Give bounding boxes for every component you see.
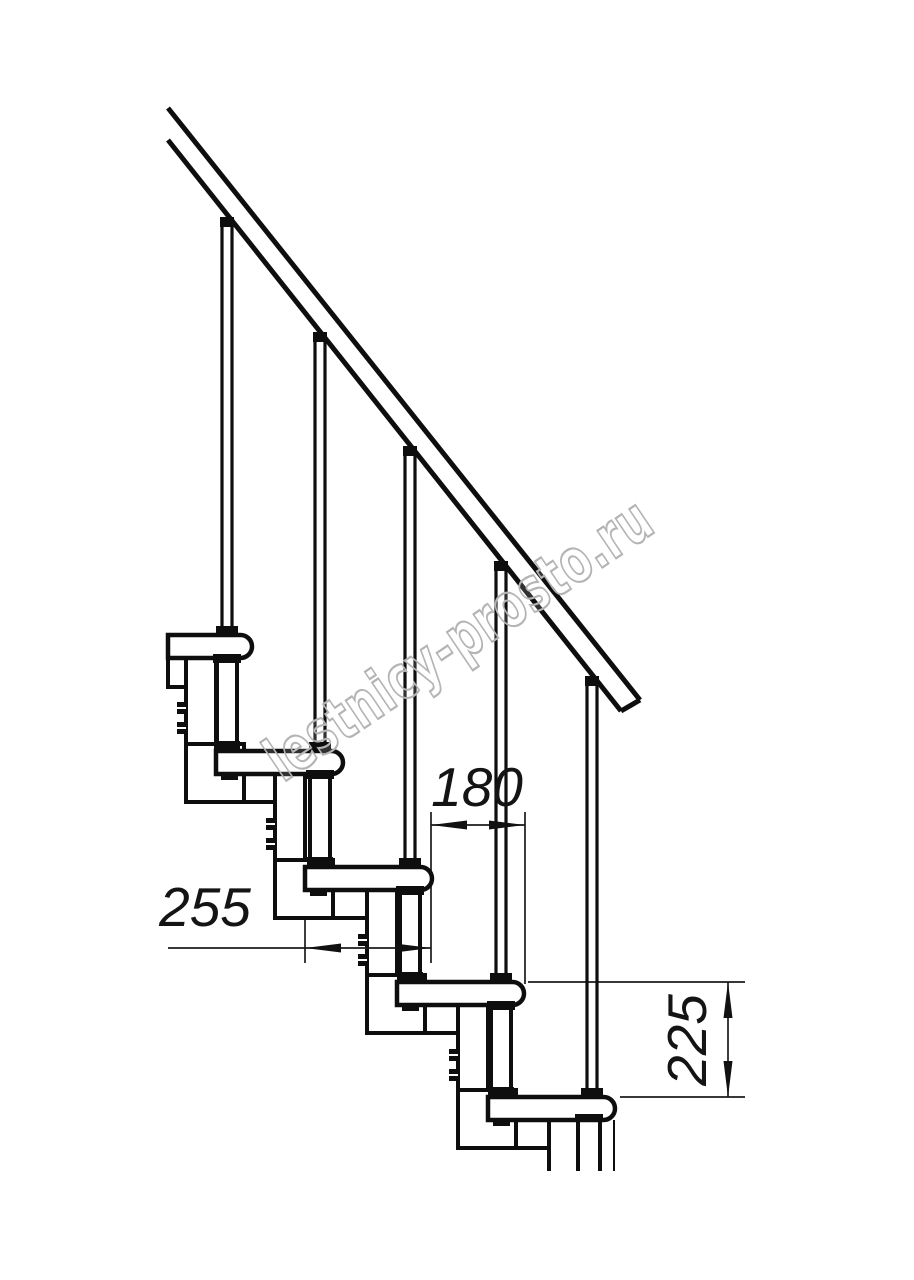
dimension-step-going: 180 [431,756,525,830]
rod-4 [487,1001,515,1097]
baluster-1 [216,217,238,635]
rod-2 [306,770,334,867]
rod-3 [396,886,424,982]
baluster-5 [581,676,603,1097]
rod-1 [213,654,241,751]
bottom-clipped-module [549,1114,614,1171]
drawing-canvas: 255 180 225 lestnicy-prosto.ru [0,0,914,1280]
step-going-value: 180 [431,756,523,818]
dimension-step-rise: 225 [656,982,733,1097]
step-rise-value: 225 [656,994,718,1087]
staircase-technical-drawing: 255 180 225 lestnicy-prosto.ru [0,0,914,1280]
tread-depth-value: 255 [158,876,251,938]
